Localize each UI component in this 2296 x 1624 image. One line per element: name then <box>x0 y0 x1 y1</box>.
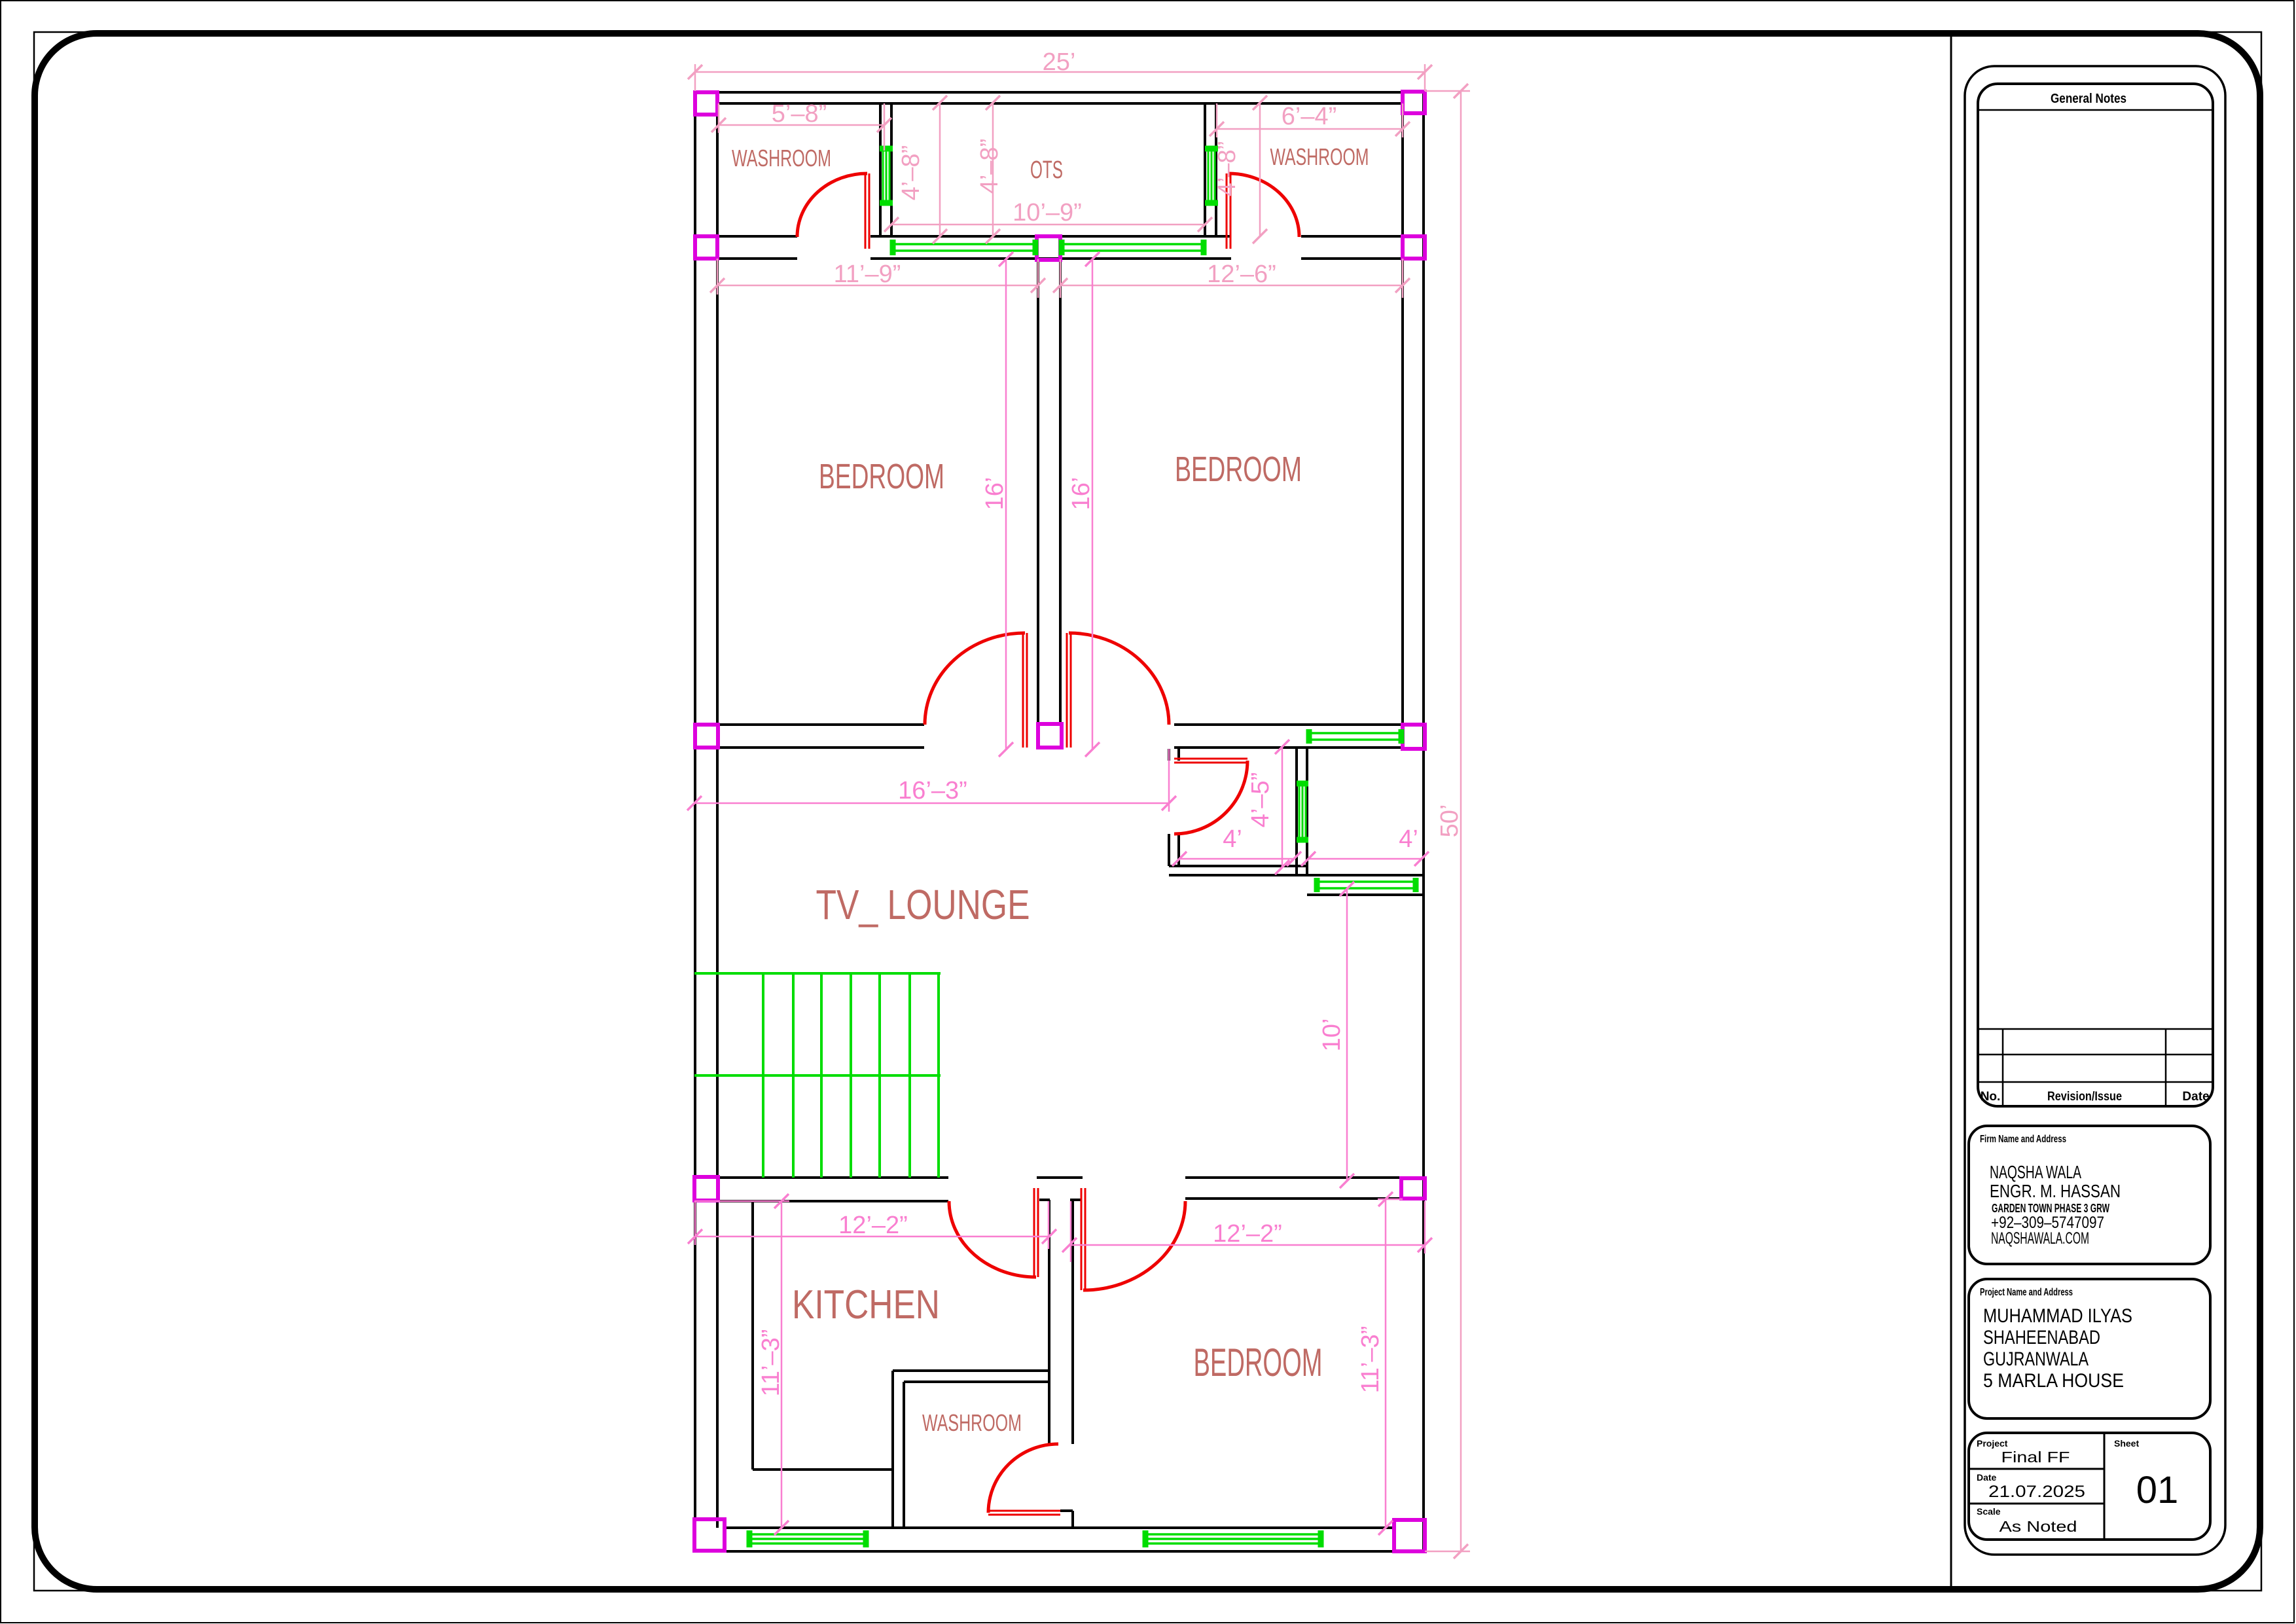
svg-text:4’–5”: 4’–5” <box>1247 772 1274 828</box>
svg-text:10’: 10’ <box>1318 1019 1346 1052</box>
svg-text:GARDEN TOWN PHASE 3 GRW: GARDEN TOWN PHASE 3 GRW <box>1992 1202 2109 1215</box>
svg-text:21.07.2025: 21.07.2025 <box>1988 1483 2085 1501</box>
svg-text:NAQSHAWALA.COM: NAQSHAWALA.COM <box>1991 1229 2089 1248</box>
svg-text:General Notes: General Notes <box>2051 92 2126 106</box>
svg-text:Revision/Issue: Revision/Issue <box>2047 1090 2122 1104</box>
svg-text:NAQSHA WALA: NAQSHA WALA <box>1990 1162 2081 1182</box>
svg-text:50’: 50’ <box>1436 804 1463 838</box>
svg-text:01: 01 <box>2136 1469 2179 1511</box>
svg-text:Date: Date <box>2182 1090 2209 1104</box>
svg-text:12’–2”: 12’–2” <box>838 1212 908 1239</box>
svg-text:TV_ LOUNGE: TV_ LOUNGE <box>816 881 1030 928</box>
svg-text:4’–8”: 4’–8” <box>976 139 1003 194</box>
svg-text:12’–2”: 12’–2” <box>1213 1220 1282 1248</box>
svg-text:4’–8”: 4’–8” <box>897 145 925 201</box>
svg-text:16’: 16’ <box>1067 477 1095 511</box>
svg-text:16’–3”: 16’–3” <box>898 777 967 804</box>
svg-text:4’–8”: 4’–8” <box>1213 141 1241 197</box>
svg-text:BEDROOM: BEDROOM <box>819 457 944 496</box>
svg-text:WASHROOM: WASHROOM <box>1270 143 1369 170</box>
svg-text:5’–8”: 5’–8” <box>772 100 827 128</box>
svg-text:WASHROOM: WASHROOM <box>732 145 831 171</box>
svg-text:GUJRANWALA: GUJRANWALA <box>1983 1348 2089 1370</box>
svg-text:10’–9”: 10’–9” <box>1013 199 1082 226</box>
svg-text:As Noted: As Noted <box>2000 1518 2077 1535</box>
svg-text:4’: 4’ <box>1223 825 1242 853</box>
svg-text:KITCHEN: KITCHEN <box>792 1282 940 1327</box>
svg-text:Final FF: Final FF <box>2001 1449 2070 1466</box>
svg-text:11’–3”: 11’–3” <box>1357 1326 1384 1394</box>
svg-text:Project: Project <box>1977 1438 2008 1449</box>
svg-text:16’: 16’ <box>981 477 1009 511</box>
svg-text:BEDROOM: BEDROOM <box>1175 450 1302 489</box>
svg-text:MUHAMMAD ILYAS: MUHAMMAD ILYAS <box>1983 1305 2132 1327</box>
svg-text:ENGR. M. HASSAN: ENGR. M. HASSAN <box>1990 1181 2121 1201</box>
svg-text:11’–9”: 11’–9” <box>834 261 901 288</box>
svg-text:Project Name and Address: Project Name and Address <box>1980 1287 2073 1298</box>
svg-text:SHAHEENABAD: SHAHEENABAD <box>1983 1327 2100 1348</box>
svg-text:4’: 4’ <box>1399 825 1418 853</box>
svg-text:BEDROOM: BEDROOM <box>1194 1341 1323 1384</box>
svg-text:25’: 25’ <box>1043 48 1076 76</box>
svg-text:WASHROOM: WASHROOM <box>922 1409 1022 1436</box>
svg-text:Date: Date <box>1977 1472 1997 1483</box>
svg-text:12’–6”: 12’–6” <box>1207 261 1276 288</box>
svg-text:OTS: OTS <box>1030 156 1063 184</box>
svg-text:Firm Name and Address: Firm Name and Address <box>1980 1134 2066 1145</box>
svg-text:5 MARLA HOUSE: 5 MARLA HOUSE <box>1983 1370 2124 1392</box>
svg-text:Sheet: Sheet <box>2114 1438 2139 1449</box>
svg-text:No.: No. <box>1981 1090 2001 1104</box>
svg-text:11’–3”: 11’–3” <box>757 1329 785 1397</box>
svg-text:Scale: Scale <box>1977 1506 2001 1517</box>
svg-text:6’–4”: 6’–4” <box>1282 103 1337 130</box>
